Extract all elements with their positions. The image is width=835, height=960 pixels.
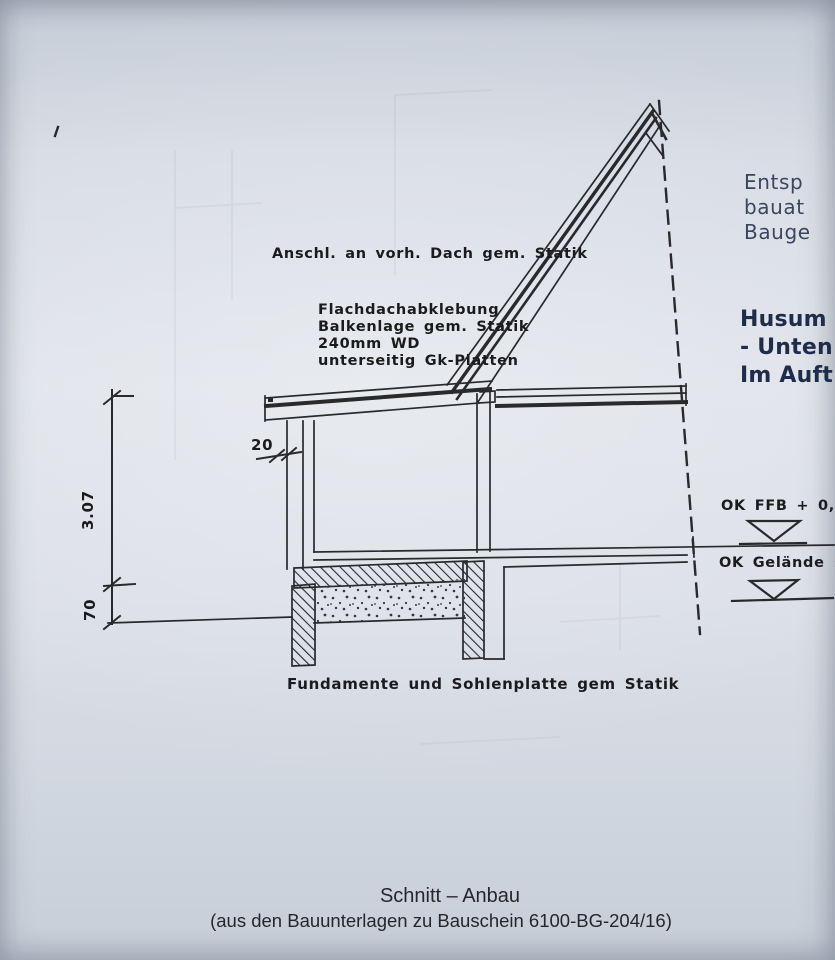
level-ground-label: OK Gelände ±0,0 <box>719 555 835 572</box>
dimension-line-left <box>104 390 135 629</box>
foundation-strip-left <box>292 584 315 666</box>
approval-stamp-upper: Entsp bauat Bauge <box>744 170 811 245</box>
stamp-line: Bauge <box>744 220 811 245</box>
level-marker-gelaende <box>732 580 833 601</box>
ground-line <box>108 617 292 623</box>
flat-roof-note-line2: Balkenlage gem. Statik <box>318 319 529 336</box>
existing-wall <box>477 391 490 552</box>
roof-connection-note: Anschl. an vorh. Dach gem. Statik <box>272 246 588 263</box>
stamp-line: Im Auft <box>740 362 833 390</box>
flat-roof-note-line4: unterseitig Gk-Platten <box>318 353 529 370</box>
level-marker-ffb <box>740 521 806 544</box>
drawing-title: Schnitt – Anbau <box>65 885 835 908</box>
flat-roof-note-line1: Flachdachabklebung <box>318 302 529 319</box>
existing-foundation <box>484 567 504 659</box>
annex-left-wall <box>287 421 314 569</box>
stamp-line: Husum <box>740 306 833 334</box>
flat-roof-note: Flachdachabklebung Balkenlage gem. Stati… <box>318 302 529 370</box>
scanned-drawing-page: Anschl. an vorh. Dach gem. Statik Flachd… <box>0 0 835 960</box>
foundation-strip-right <box>463 561 484 659</box>
stamp-line: Entsp <box>744 170 811 195</box>
section-drawing-svg <box>0 0 835 960</box>
dimension-plinth-label: 70 <box>82 599 99 621</box>
foundation-note: Fundamente und Sohlenplatte gem Statik <box>287 676 679 693</box>
stray-mark <box>55 127 58 136</box>
approval-stamp-lower: Husum - Unten Im Auft <box>740 306 833 390</box>
dimension-wall-thickness-label: 20 <box>251 437 273 454</box>
existing-ceiling-band <box>497 384 686 406</box>
page-showthrough <box>175 90 660 744</box>
dimension-room-height-label: 3.07 <box>80 490 97 530</box>
gravel-stipple <box>314 579 465 624</box>
stamp-line: - Unten <box>740 334 833 362</box>
drawing-subtitle: (aus den Bauunterlagen zu Bauschein 6100… <box>47 910 835 932</box>
stamp-line: bauat <box>744 195 811 220</box>
annex-flat-roof <box>265 381 495 421</box>
level-ffb-label: OK FFB + 0,90 <box>721 498 835 515</box>
flat-roof-note-line3: 240mm WD <box>318 336 529 353</box>
